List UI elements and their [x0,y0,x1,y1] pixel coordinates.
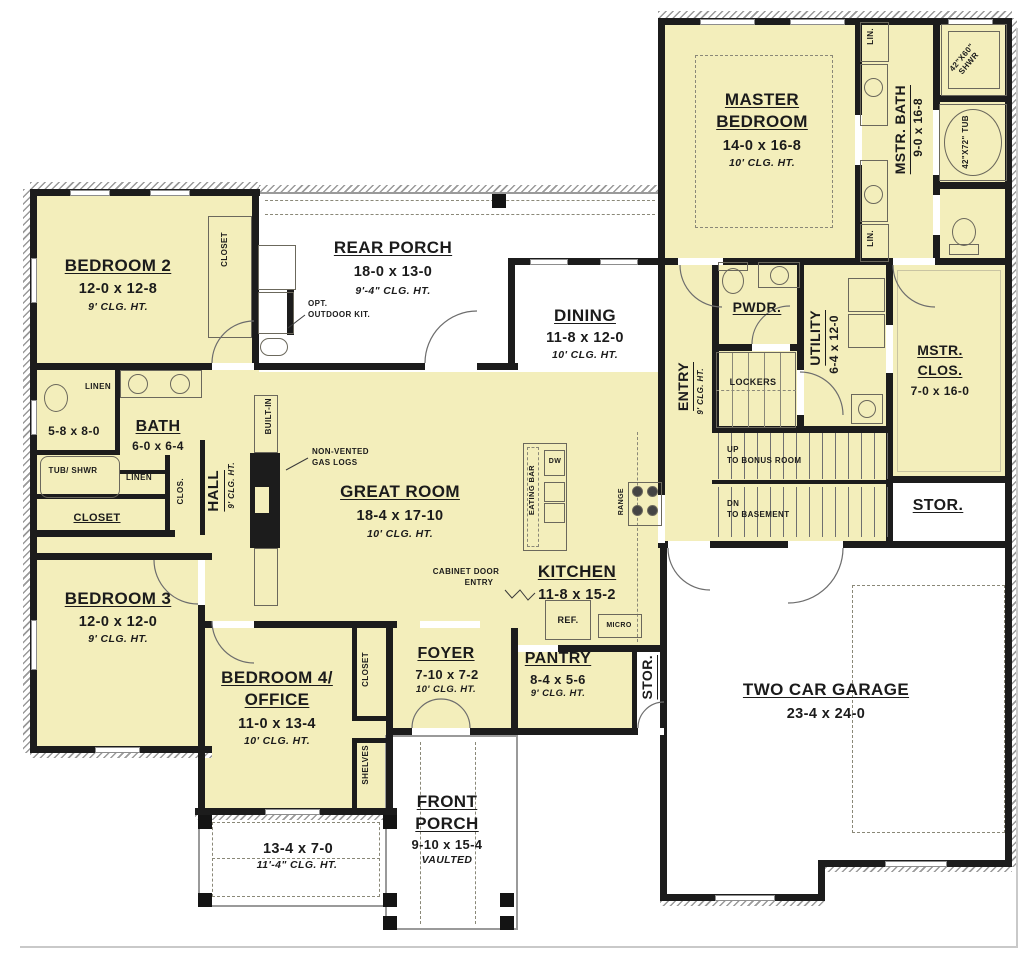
stairs-dn-dest: TO BASEMENT [727,511,789,520]
pantry-clg: 9' CLG. HT. [531,689,586,700]
floor-plan: MASTER BEDROOM 14-0 x 16-8 10' CLG. HT. … [0,0,1024,958]
entry-label: ENTRY [676,362,692,411]
cabinet-entry-label2: ENTRY [465,579,494,588]
rear-porch-clg: 9'-4" CLG. HT. [355,286,430,298]
pantry-dims: 8-4 x 5-6 [530,673,586,688]
bedroom4-label: BEDROOM 4/ [221,668,333,687]
shelves-label: SHELVES [362,745,371,785]
gas-logs-label2: GAS LOGS [312,459,357,468]
garage-dims: 23-4 x 24-0 [787,706,866,722]
stor-pantry-label: STOR. [640,655,656,700]
dining-clg: 10' CLG. HT. [552,350,618,362]
gas-logs-label: NON-VENTED [312,448,369,457]
closet-label: CLOSET [73,512,120,524]
great-room-dims: 18-4 x 17-10 [356,508,443,524]
bedroom2-clg: 9' CLG. HT. [88,302,148,314]
mstr-bath-dims: 9-0 x 16-8 [912,98,925,157]
garage-label: TWO CAR GARAGE [743,680,909,699]
left-porch-dims: 13-4 x 7-0 [263,841,333,857]
kitchen-dims: 11-8 x 15-2 [538,587,616,603]
ref-label: REF. [557,615,578,625]
door-arcs-overlay [0,0,1024,958]
linen-label: LINEN [126,474,152,483]
bedroom4-clg: 10' CLG. HT. [244,736,310,748]
pwdr-label: PWDR. [733,300,782,316]
utility-label: UTILITY [808,310,824,366]
rear-porch-dims: 18-0 x 13-0 [354,264,433,280]
range-label: RANGE [618,488,626,515]
clos-label: CLOS. [177,478,186,504]
built-in-label: BUILT-IN [265,398,274,434]
stairs-up-dest: TO BONUS ROOM [727,457,801,466]
front-porch-label: FRONT [417,792,478,811]
tub-size-label: 42"X72" TUB [962,115,971,169]
eating-bar-label: EATING BAR [528,465,536,515]
closet-label: CLOSET [362,652,371,687]
stor-garage-label: STOR. [913,497,964,515]
front-porch-dims: 9-10 x 15-4 [412,838,483,853]
lockers-label: LOCKERS [730,377,777,387]
entry-clg: 9' CLG. HT. [697,368,706,415]
bedroom2-dims: 12-0 x 12-8 [79,281,158,297]
master-bedroom-dims: 14-0 x 16-8 [723,138,802,154]
mstr-clos-label: MSTR. [917,343,963,359]
linen-label: LIN. [867,230,876,247]
stairs-dn-label: DN [727,500,739,509]
mstr-clos-dims: 7-0 x 16-0 [911,385,970,398]
bedroom3-label: BEDROOM 3 [65,589,172,608]
bedroom3-clg: 9' CLG. HT. [88,634,148,646]
opt-outdoor-kit-label2: OUTDOOR KIT. [308,311,370,320]
front-porch-clg: VAULTED [422,855,473,867]
dining-label: DINING [554,306,616,325]
foyer-dims: 7-10 x 7-2 [415,668,478,683]
stairs-up-label: UP [727,446,739,455]
foyer-label: FOYER [417,645,474,663]
master-bedroom-label2: BEDROOM [716,112,808,131]
great-room-label: GREAT ROOM [340,482,460,501]
linen-label: LIN. [867,28,876,45]
hall-label: HALL [206,470,223,512]
sheet-edge [20,946,1018,948]
bedroom4-label2: OFFICE [245,690,310,709]
master-bedroom-clg: 10' CLG. HT. [729,158,795,170]
hall-clg: 9' CLG. HT. [228,462,237,509]
mstr-clos-label2: CLOS. [918,363,963,379]
dw-label: DW [549,458,561,466]
great-room-clg: 10' CLG. HT. [367,529,433,541]
cabinet-entry-label: CABINET DOOR [433,568,500,577]
foyer-clg: 10' CLG. HT. [416,685,476,696]
linen-label: LINEN [85,383,111,392]
bedroom4-dims: 11-0 x 13-4 [238,716,316,732]
mstr-bath-label: MSTR. BATH [893,85,909,174]
tub-shwr-label: TUB/ SHWR [49,467,98,476]
bath-dims: 6-0 x 6-4 [132,440,184,453]
bath-wc-dims: 5-8 x 8-0 [48,425,100,438]
bedroom3-dims: 12-0 x 12-0 [79,614,158,630]
micro-label: MICRO [606,622,631,630]
pantry-label: PANTRY [525,650,591,668]
front-porch-label2: PORCH [415,814,478,833]
closet-label: CLOSET [221,232,230,267]
dining-dims: 11-8 x 12-0 [546,330,624,346]
bedroom2-label: BEDROOM 2 [65,256,172,275]
opt-outdoor-kit-label: OPT. [308,300,327,309]
left-porch-clg: 11'-4" CLG. HT. [257,860,338,872]
sheet-edge [1016,28,1018,948]
bath-label: BATH [136,418,181,436]
utility-dims: 6-4 x 12-0 [828,315,841,374]
master-bedroom-label: MASTER [725,90,799,109]
kitchen-label: KITCHEN [538,562,616,581]
rear-porch-label: REAR PORCH [334,238,452,257]
